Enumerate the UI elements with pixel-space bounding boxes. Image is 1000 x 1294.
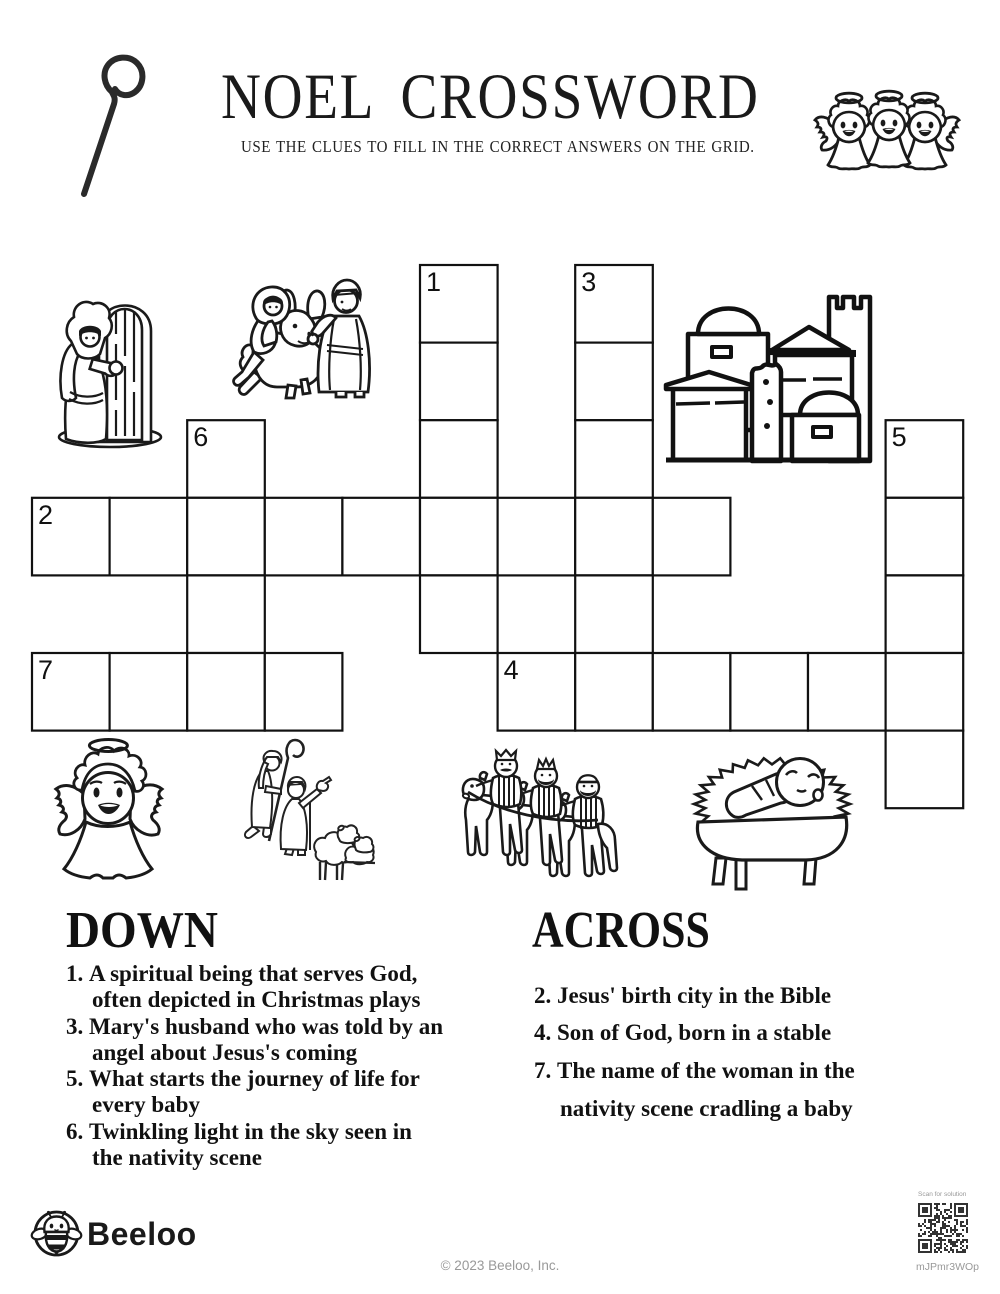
svg-text:6: 6 [193, 422, 208, 452]
svg-text:4: 4 [504, 655, 519, 685]
svg-text:2: 2 [38, 500, 53, 530]
svg-text:7: 7 [38, 655, 53, 685]
svg-text:1: 1 [426, 267, 441, 297]
svg-text:3: 3 [581, 267, 596, 297]
svg-text:5: 5 [892, 422, 907, 452]
